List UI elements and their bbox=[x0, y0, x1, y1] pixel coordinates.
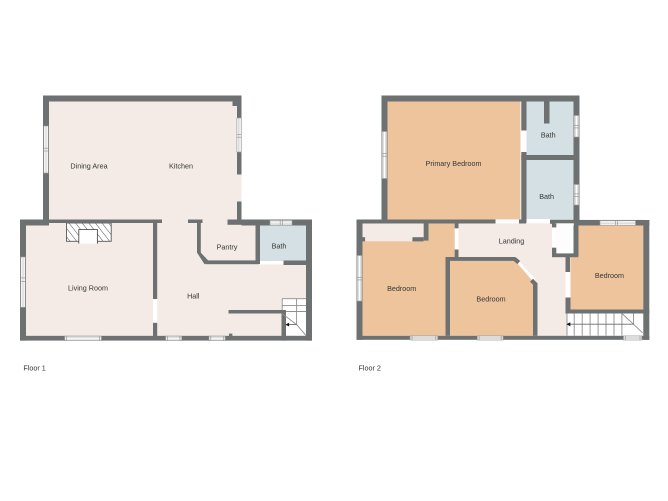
svg-text:Kitchen: Kitchen bbox=[169, 162, 193, 171]
svg-text:Bedroom: Bedroom bbox=[387, 284, 416, 293]
svg-text:Floor 2: Floor 2 bbox=[359, 364, 381, 373]
svg-text:Landing: Landing bbox=[499, 237, 525, 246]
svg-text:Pantry: Pantry bbox=[217, 243, 238, 252]
svg-text:Bedroom: Bedroom bbox=[595, 271, 624, 280]
svg-text:Bath: Bath bbox=[539, 192, 554, 201]
svg-text:Floor 1: Floor 1 bbox=[23, 364, 45, 373]
svg-text:Bath: Bath bbox=[541, 130, 556, 139]
svg-text:Living Room: Living Room bbox=[68, 283, 108, 292]
svg-text:Primary Bedroom: Primary Bedroom bbox=[426, 159, 482, 168]
svg-text:Hall: Hall bbox=[187, 292, 200, 301]
svg-text:Dining Area: Dining Area bbox=[70, 162, 107, 171]
svg-text:Bedroom: Bedroom bbox=[476, 295, 505, 304]
svg-text:Bath: Bath bbox=[272, 242, 287, 251]
